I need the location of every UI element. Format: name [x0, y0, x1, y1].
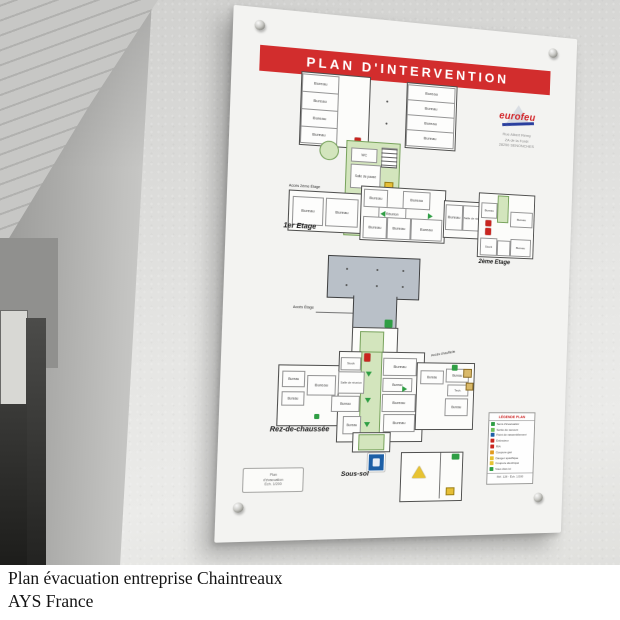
room-bureau: Bureau [445, 204, 463, 231]
column-dot [402, 286, 404, 288]
room-bureau: Bureau [331, 396, 360, 412]
assembly-point-sign [367, 453, 385, 471]
evacuation-arrow-icon [366, 372, 372, 377]
legend-color-icon [491, 428, 495, 432]
ria-icon [485, 220, 491, 226]
room-bureau: Bureau [383, 358, 417, 376]
room-stock: Stock [480, 238, 498, 256]
warning-triangle-icon [412, 466, 426, 478]
room-bureau: Bureau [382, 378, 412, 392]
room-bureau: Bureau [381, 394, 415, 412]
room-bureau: Bureau [325, 198, 359, 228]
room-bureau: Bureau [386, 217, 411, 240]
stairwell-green [319, 140, 339, 161]
column-dot [346, 268, 348, 270]
hallway-dark-doorway [26, 318, 46, 565]
room-bureau: Bureau [363, 189, 388, 208]
screw-icon [254, 19, 265, 30]
room-bureau: Bureau [510, 212, 533, 229]
hallway-dark-floor [0, 404, 27, 565]
wall-background: PLAN D'INTERVENTION eurofeu Rue Albert R… [0, 0, 620, 565]
legend-box: LÉGENDE PLAN Sens d'évacuation Sortie de… [486, 412, 535, 485]
legend-title: LÉGENDE PLAN [489, 413, 534, 421]
legend-color-icon [490, 450, 494, 454]
annotation-acces-2eme: Accès 2ème Étage [274, 182, 320, 189]
room-bureau: Bureau [481, 202, 498, 219]
room-salle-reunion: Salle de réunion [338, 371, 365, 394]
evacuation-arrow-icon [365, 398, 371, 403]
column-dot [402, 270, 404, 272]
column-dot [345, 284, 347, 286]
floor-label-first: 1er Etage [283, 222, 316, 231]
room-bureau: Bureau [292, 196, 324, 226]
plan-cartouche: Plan d'évacuation Éch. 1/200 [242, 467, 304, 493]
screw-icon [548, 48, 557, 58]
legend-color-icon [491, 422, 495, 426]
exit-icon [452, 454, 460, 460]
legend-color-icon [489, 467, 493, 471]
logo-address: Rue Albert Rémy ZA de la Forêt 28250 SEN… [482, 130, 550, 151]
legend-footer: Réf. 128 - Éch. 1/200 [487, 473, 532, 479]
column-dot [376, 285, 378, 287]
annotation-acces-etage: Accès Étage [287, 305, 314, 310]
electric-cutoff-icon [446, 487, 455, 495]
room-bureau: Bureau [402, 191, 430, 210]
screw-icon [533, 493, 543, 503]
floor-label-second: 2ème Etage [478, 259, 510, 266]
room-bureau: Bureau [383, 414, 415, 432]
stairwell-green [497, 195, 509, 223]
room-bureau: Bureau [282, 371, 306, 388]
room-bureau: Bureau [307, 375, 337, 396]
annotation-acces-chaufferie: Accès chaufferie [431, 348, 464, 357]
legend-color-icon [490, 456, 494, 460]
gas-cutoff-icon [466, 383, 474, 391]
evacuation-arrow-icon [364, 422, 370, 427]
legend-color-icon [490, 462, 494, 466]
room-wc: WC [351, 147, 378, 163]
room-bureau: Bureau [444, 398, 468, 416]
legend-color-icon [491, 433, 495, 437]
evacuation-corridor [358, 351, 382, 442]
room-bureau: Bureau [281, 391, 305, 406]
room-small [497, 240, 511, 256]
room-bureau: Bureau [410, 218, 442, 241]
room-bureau: Bureau [362, 216, 387, 239]
room-stock: Stock [340, 357, 361, 370]
column-dot [385, 123, 387, 125]
legend-color-icon [490, 445, 494, 449]
evacuation-arrow-icon [402, 386, 407, 392]
gas-cutoff-icon [463, 369, 472, 378]
exit-icon [314, 414, 319, 419]
logo-address-line: 28250 SENONCHES [499, 142, 534, 149]
evacuation-corridor [359, 331, 384, 354]
caption: Plan évacuation entreprise Chaintreaux A… [0, 565, 620, 620]
floor-label-basement: Sous-sol [341, 471, 369, 478]
evacuation-arrow-icon [380, 211, 385, 217]
room-bureau: Bureau [406, 129, 454, 149]
eurofeu-logo: eurofeu Rue Albert Rémy ZA de la Forêt 2… [482, 102, 551, 163]
exit-icon [384, 320, 392, 328]
legend-item: Vous êtes ici [488, 466, 533, 472]
evacuation-corridor [358, 434, 385, 450]
exit-icon [452, 365, 458, 371]
hallway-door [0, 310, 28, 406]
legend-color-icon [490, 439, 494, 443]
floor-label-ground: Rez-de-chaussée [270, 426, 330, 433]
workshop-hall [327, 255, 421, 301]
evacuation-arrow-icon [428, 213, 433, 219]
column-dot [376, 269, 378, 271]
photo-of-wall-mounted-plan: PLAN D'INTERVENTION eurofeu Rue Albert R… [0, 0, 620, 620]
staircase-icon [381, 147, 398, 168]
caption-line2: AYS France [8, 591, 93, 612]
screw-icon [233, 502, 244, 513]
extinguisher-icon [364, 353, 370, 361]
extinguisher-icon [485, 228, 491, 235]
column-dot [386, 100, 388, 102]
caption-line1: Plan évacuation entreprise Chaintreaux [8, 568, 283, 589]
room-bureau: Bureau [420, 370, 444, 384]
room-bureau: Bureau [510, 239, 531, 257]
leader-line [316, 312, 353, 314]
plan-board: PLAN D'INTERVENTION eurofeu Rue Albert R… [214, 5, 577, 543]
